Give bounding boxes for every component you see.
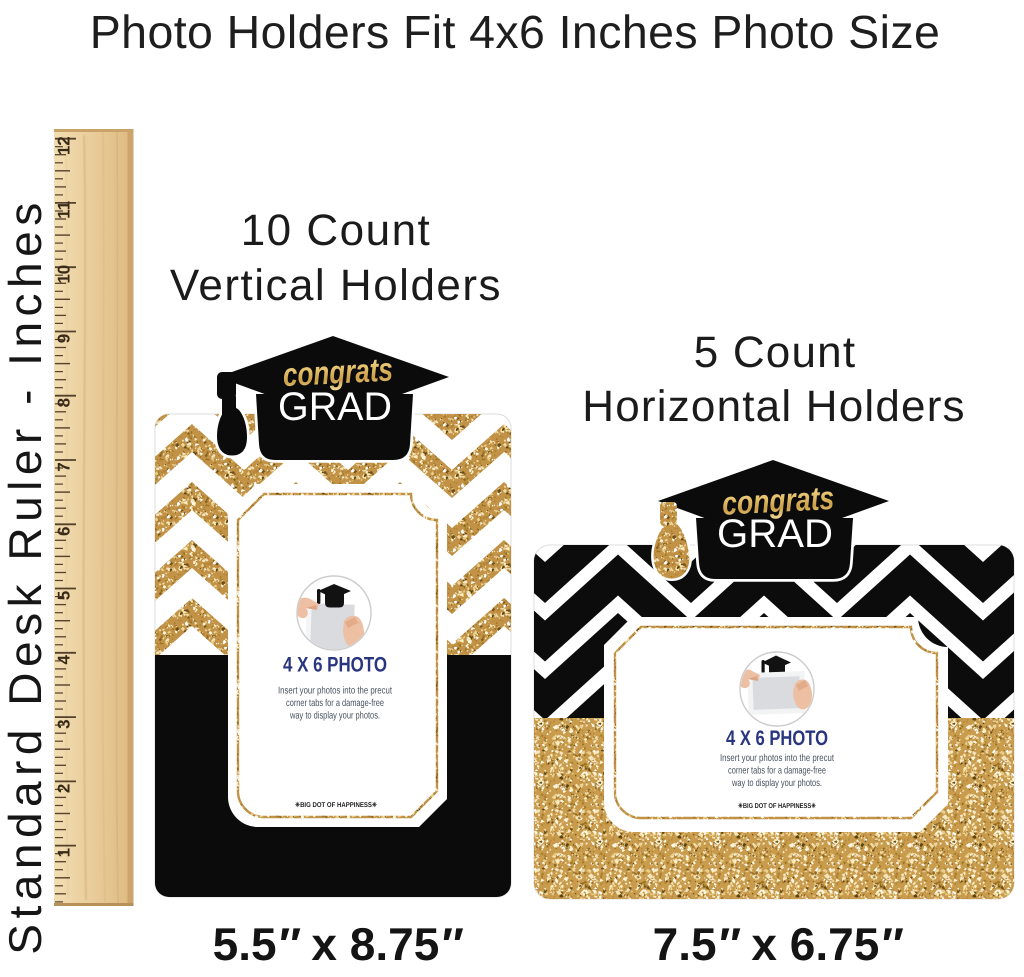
svg-text:9: 9 xyxy=(55,334,74,343)
svg-text:way to display your photos.: way to display your photos. xyxy=(289,711,380,722)
svg-text:Horizontal Holders: Horizontal Holders xyxy=(582,382,966,431)
svg-text:✳BIG DOT OF HAPPINESS✳: ✳BIG DOT OF HAPPINESS✳ xyxy=(295,801,377,809)
svg-text:corner tabs for a damage-free: corner tabs for a damage-free xyxy=(286,698,384,709)
svg-text:7.5″ x 6.75″: 7.5″ x 6.75″ xyxy=(653,918,904,970)
svg-text:GRAD: GRAD xyxy=(278,385,392,429)
svg-text:corner tabs for a damage-free: corner tabs for a damage-free xyxy=(728,766,826,777)
svg-text:6: 6 xyxy=(55,527,74,536)
svg-text:8: 8 xyxy=(55,398,74,407)
svg-text:12: 12 xyxy=(55,136,74,155)
svg-text:Insert your photos into the pr: Insert your photos into the precut xyxy=(720,753,834,764)
svg-text:4: 4 xyxy=(55,655,74,665)
svg-text:Vertical Holders: Vertical Holders xyxy=(170,261,502,310)
svg-text:4 X 6 PHOTO: 4 X 6 PHOTO xyxy=(726,727,828,750)
svg-text:way to display your photos.: way to display your photos. xyxy=(731,778,822,789)
svg-text:Standard Desk Ruler - Inches: Standard Desk Ruler - Inches xyxy=(0,197,51,954)
svg-text:Insert your photos into the pr: Insert your photos into the precut xyxy=(278,686,392,697)
svg-text:1: 1 xyxy=(55,848,74,857)
svg-text:11: 11 xyxy=(55,201,74,219)
svg-text:2: 2 xyxy=(55,784,74,793)
svg-text:GRAD: GRAD xyxy=(717,512,833,556)
svg-text:7: 7 xyxy=(55,462,74,471)
svg-text:5.5″ x 8.75″: 5.5″ x 8.75″ xyxy=(213,918,464,970)
svg-text:Photo Holders Fit 4x6 Inches P: Photo Holders Fit 4x6 Inches Photo Size xyxy=(90,6,940,58)
svg-text:5: 5 xyxy=(55,591,74,600)
svg-text:3: 3 xyxy=(55,719,74,728)
svg-text:5 Count: 5 Count xyxy=(694,328,857,377)
svg-text:✳BIG DOT OF HAPPINESS✳: ✳BIG DOT OF HAPPINESS✳ xyxy=(738,802,816,810)
svg-text:10 Count: 10 Count xyxy=(241,206,432,255)
svg-text:10: 10 xyxy=(55,265,74,284)
svg-text:4 X 6 PHOTO: 4 X 6 PHOTO xyxy=(283,654,387,677)
